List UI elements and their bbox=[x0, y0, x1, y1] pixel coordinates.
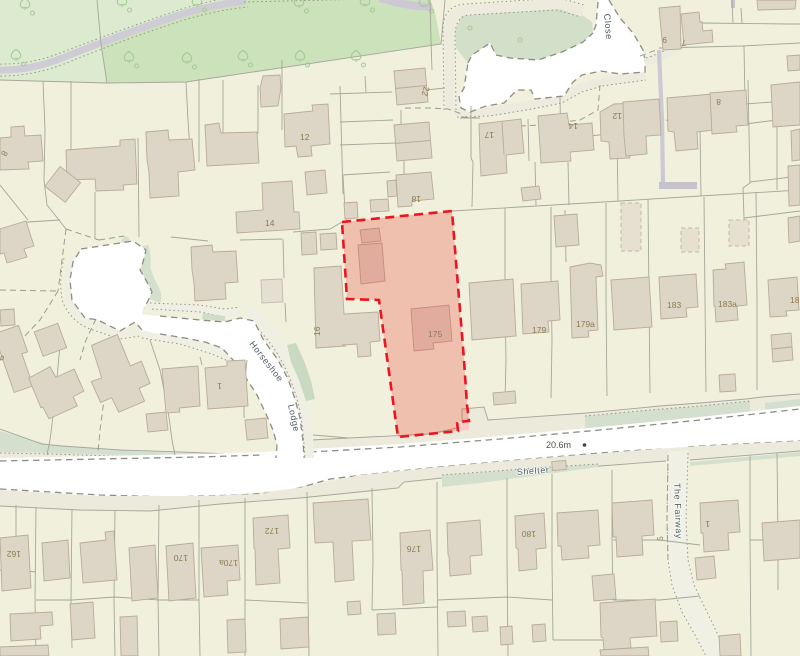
svg-text:7: 7 bbox=[681, 38, 686, 48]
svg-text:175: 175 bbox=[428, 329, 442, 339]
svg-text:The Fairway: The Fairway bbox=[672, 483, 684, 539]
svg-text:12: 12 bbox=[300, 132, 310, 142]
svg-text:179a: 179a bbox=[576, 319, 595, 329]
svg-text:170a: 170a bbox=[219, 558, 238, 568]
svg-text:17: 17 bbox=[484, 130, 494, 140]
svg-text:18: 18 bbox=[790, 295, 800, 305]
svg-text:183a: 183a bbox=[718, 299, 737, 309]
svg-text:1: 1 bbox=[705, 519, 710, 529]
svg-text:12: 12 bbox=[612, 111, 622, 121]
svg-text:18: 18 bbox=[411, 194, 421, 204]
svg-text:5: 5 bbox=[655, 536, 665, 541]
svg-text:172: 172 bbox=[265, 526, 279, 536]
svg-text:9: 9 bbox=[662, 35, 667, 45]
svg-text:20.6m: 20.6m bbox=[546, 440, 571, 450]
svg-text:1: 1 bbox=[217, 381, 222, 391]
svg-text:162: 162 bbox=[7, 549, 21, 559]
svg-text:180: 180 bbox=[522, 529, 536, 539]
svg-text:14: 14 bbox=[568, 121, 578, 131]
svg-text:16: 16 bbox=[312, 326, 322, 336]
svg-text:5: 5 bbox=[0, 355, 6, 360]
svg-text:179: 179 bbox=[532, 325, 546, 335]
svg-text:14: 14 bbox=[265, 218, 275, 228]
svg-text:170: 170 bbox=[174, 553, 188, 563]
svg-text:183: 183 bbox=[667, 300, 681, 310]
svg-text:176: 176 bbox=[407, 544, 421, 554]
svg-text:8: 8 bbox=[716, 97, 721, 107]
